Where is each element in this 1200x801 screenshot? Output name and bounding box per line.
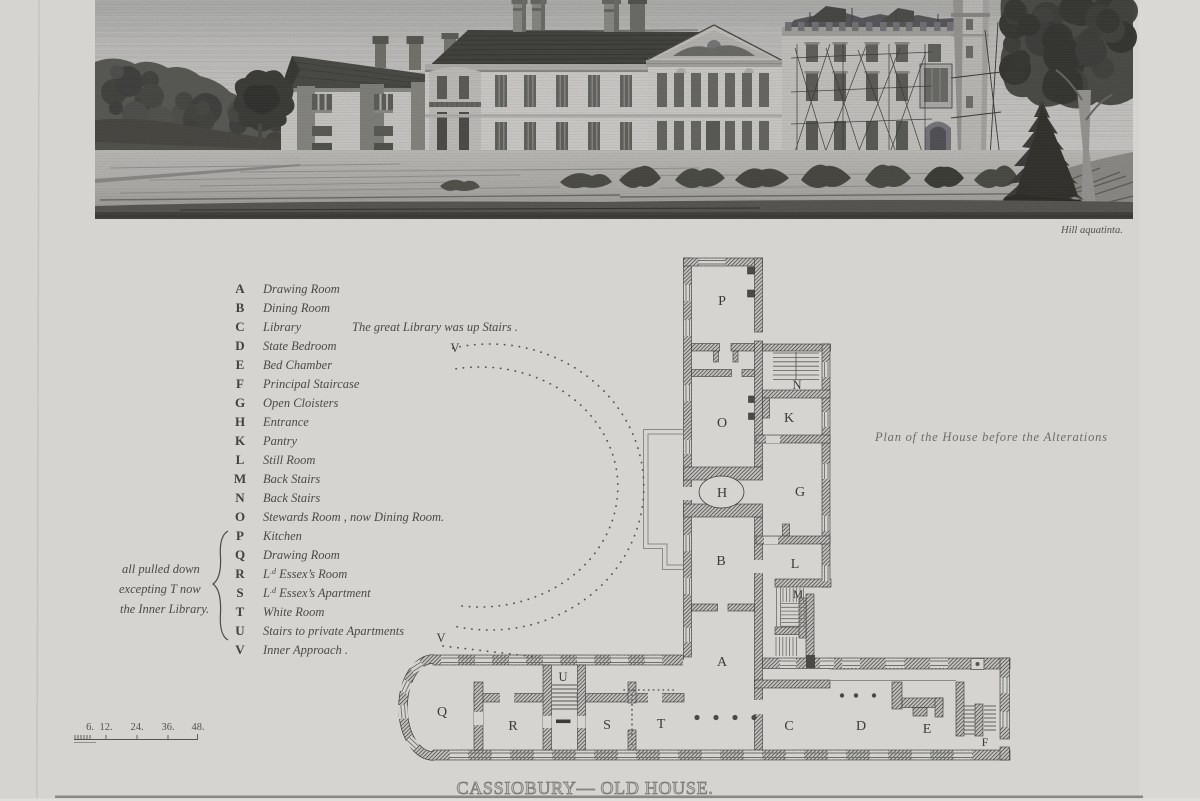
- svg-text:Library: Library: [262, 320, 302, 334]
- svg-text:G: G: [235, 395, 245, 410]
- svg-text:S: S: [236, 585, 243, 600]
- svg-text:E: E: [923, 722, 932, 737]
- svg-text:B: B: [236, 300, 245, 315]
- svg-text:C: C: [235, 319, 244, 334]
- svg-text:the Inner Library.: the Inner Library.: [120, 602, 209, 616]
- svg-text:H: H: [235, 414, 245, 429]
- svg-text:H: H: [717, 486, 727, 501]
- svg-text:Kitchen: Kitchen: [262, 529, 302, 543]
- svg-text:Inner Approach .: Inner Approach .: [262, 643, 348, 657]
- svg-text:V: V: [436, 631, 445, 645]
- svg-text:Stairs to private Apartments: Stairs to private Apartments: [263, 624, 404, 638]
- svg-text:all pulled down: all pulled down: [122, 562, 200, 576]
- svg-text:Drawing Room: Drawing Room: [262, 282, 340, 296]
- svg-text:L: L: [791, 557, 800, 572]
- svg-text:L.d Essex’s Apartment: L.d Essex’s Apartment: [262, 586, 371, 600]
- svg-text:K: K: [784, 411, 794, 426]
- svg-text:D: D: [235, 338, 244, 353]
- svg-text:Dining Room: Dining Room: [262, 301, 330, 315]
- svg-text:Entrance: Entrance: [262, 415, 309, 429]
- svg-text:B: B: [716, 554, 725, 569]
- svg-text:Q: Q: [235, 547, 245, 562]
- svg-text:Open Cloisters: Open Cloisters: [263, 396, 338, 410]
- svg-text:O: O: [235, 509, 245, 524]
- svg-text:O: O: [717, 416, 727, 431]
- svg-text:R: R: [235, 566, 245, 581]
- svg-text:24.: 24.: [130, 722, 143, 733]
- svg-text:M: M: [234, 471, 246, 486]
- svg-text:The great Library was up St: The great Library was up Stairs .: [352, 320, 518, 334]
- svg-text:U: U: [235, 623, 245, 638]
- svg-text:Bed Chamber: Bed Chamber: [263, 358, 332, 372]
- svg-text:P: P: [718, 294, 726, 309]
- svg-text:V: V: [450, 341, 459, 355]
- svg-text:N: N: [235, 490, 245, 505]
- svg-text:F: F: [236, 376, 244, 391]
- svg-text:Principal Staircase: Principal Staircase: [262, 377, 360, 391]
- svg-text:N: N: [792, 378, 801, 392]
- svg-text:T: T: [236, 604, 245, 619]
- svg-text:D: D: [856, 719, 866, 734]
- svg-text:L: L: [236, 452, 245, 467]
- svg-text:V: V: [235, 642, 245, 657]
- svg-text:12.: 12.: [99, 722, 112, 733]
- svg-text:Plan of the House before the A: Plan of the House before the Alterations: [874, 430, 1107, 444]
- svg-text:Q: Q: [437, 705, 447, 720]
- svg-text:A: A: [235, 281, 245, 296]
- svg-text:A: A: [717, 655, 728, 670]
- svg-text:Still Room: Still Room: [263, 453, 315, 467]
- svg-text:Back Stairs: Back Stairs: [263, 491, 320, 505]
- svg-text:T: T: [657, 717, 666, 732]
- svg-text:C: C: [784, 719, 793, 734]
- svg-text:K: K: [235, 433, 246, 448]
- svg-text:G: G: [795, 485, 805, 500]
- svg-text:CASSIOBURY— OLD HOUSE.: CASSIOBURY— OLD HOUSE.: [457, 778, 714, 798]
- svg-text:Back Stairs: Back Stairs: [263, 472, 320, 486]
- svg-text:48.: 48.: [191, 722, 204, 733]
- svg-text:State Bedroom: State Bedroom: [263, 339, 336, 353]
- svg-text:R: R: [508, 719, 518, 734]
- svg-text:6.: 6.: [86, 722, 94, 733]
- svg-text:36.: 36.: [161, 722, 174, 733]
- svg-text:F: F: [982, 735, 989, 749]
- svg-text:E: E: [236, 357, 245, 372]
- svg-text:Hill aquatinta.: Hill aquatinta.: [1060, 225, 1123, 236]
- svg-text:U: U: [558, 670, 567, 684]
- svg-text:Stewards Room , now Dining Roo: Stewards Room , now Dining Room.: [263, 510, 444, 524]
- svg-text:Drawing Room: Drawing Room: [262, 548, 340, 562]
- svg-text:S: S: [603, 718, 611, 733]
- svg-text:White Room: White Room: [263, 605, 324, 619]
- svg-text:M: M: [793, 589, 803, 601]
- svg-text:P: P: [236, 528, 244, 543]
- svg-text:Pantry: Pantry: [262, 434, 297, 448]
- svg-text:excepting T now: excepting T now: [119, 582, 201, 596]
